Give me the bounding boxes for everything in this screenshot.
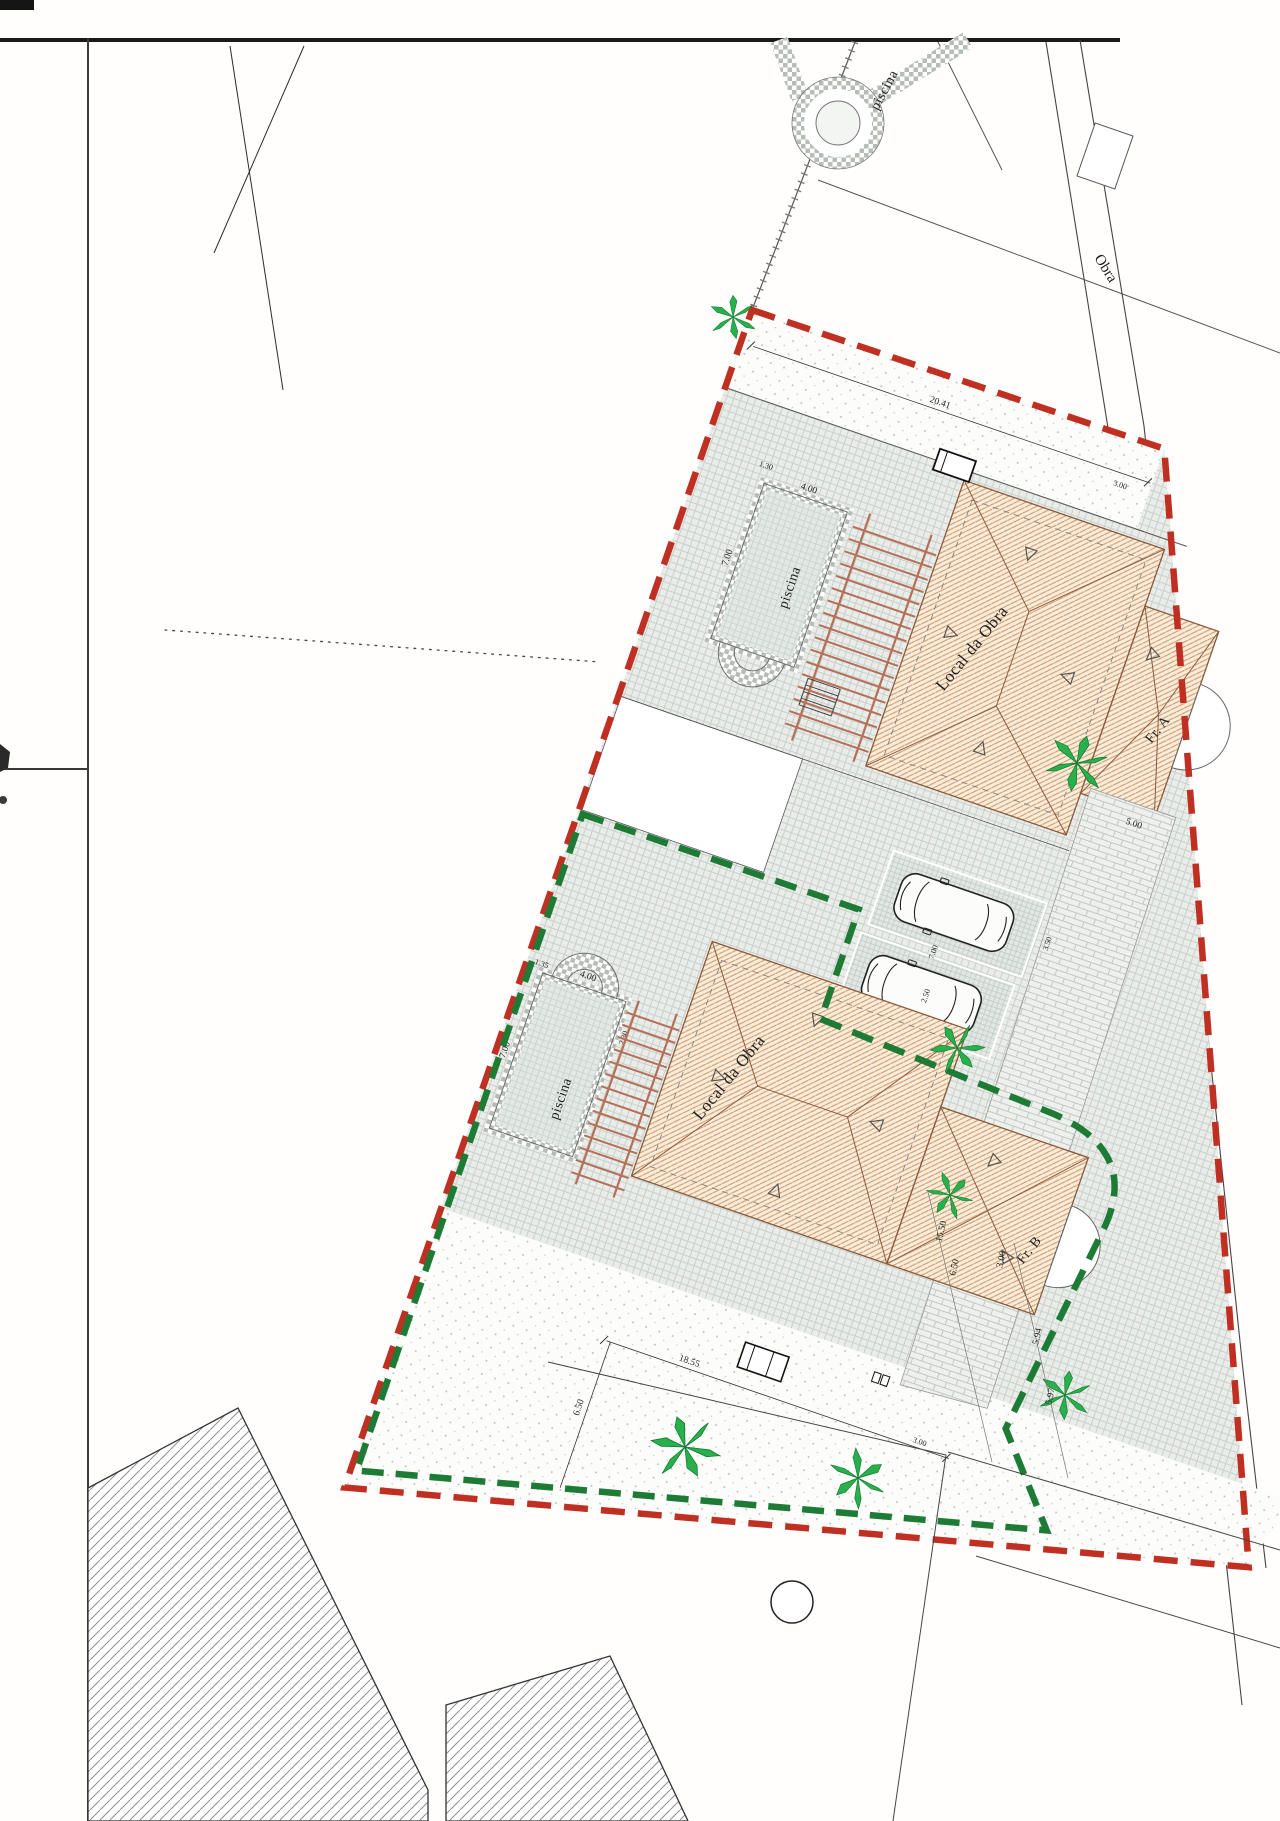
site-plan-canvas: piscina Obra 20.41 3.00 4.00 1.30 7.00 [0, 0, 1280, 1821]
scan-blot [0, 744, 10, 772]
survey-lines [214, 46, 304, 390]
neighbor-boundary-line [818, 180, 1280, 353]
survey-line-1 [230, 46, 283, 390]
scan-corner-mark [0, 0, 34, 10]
scan-blot-2 [0, 796, 7, 804]
neighbor-tile-band-1 [779, 40, 800, 98]
existing-building-hatched-2 [446, 1656, 688, 1821]
street-cross-line-2 [976, 1556, 1280, 1648]
dotted-leader-line [165, 630, 600, 662]
manhole-circle [771, 1581, 813, 1623]
lot-plan-group: 20.41 3.00 4.00 1.30 7.00 piscina [344, 307, 1280, 1780]
survey-line-2 [214, 46, 304, 253]
neighbor-pad [1077, 123, 1133, 189]
scan-left-tick-line [0, 768, 88, 770]
scanned-site-plan: piscina Obra 20.41 3.00 4.00 1.30 7.00 [0, 0, 1280, 1821]
